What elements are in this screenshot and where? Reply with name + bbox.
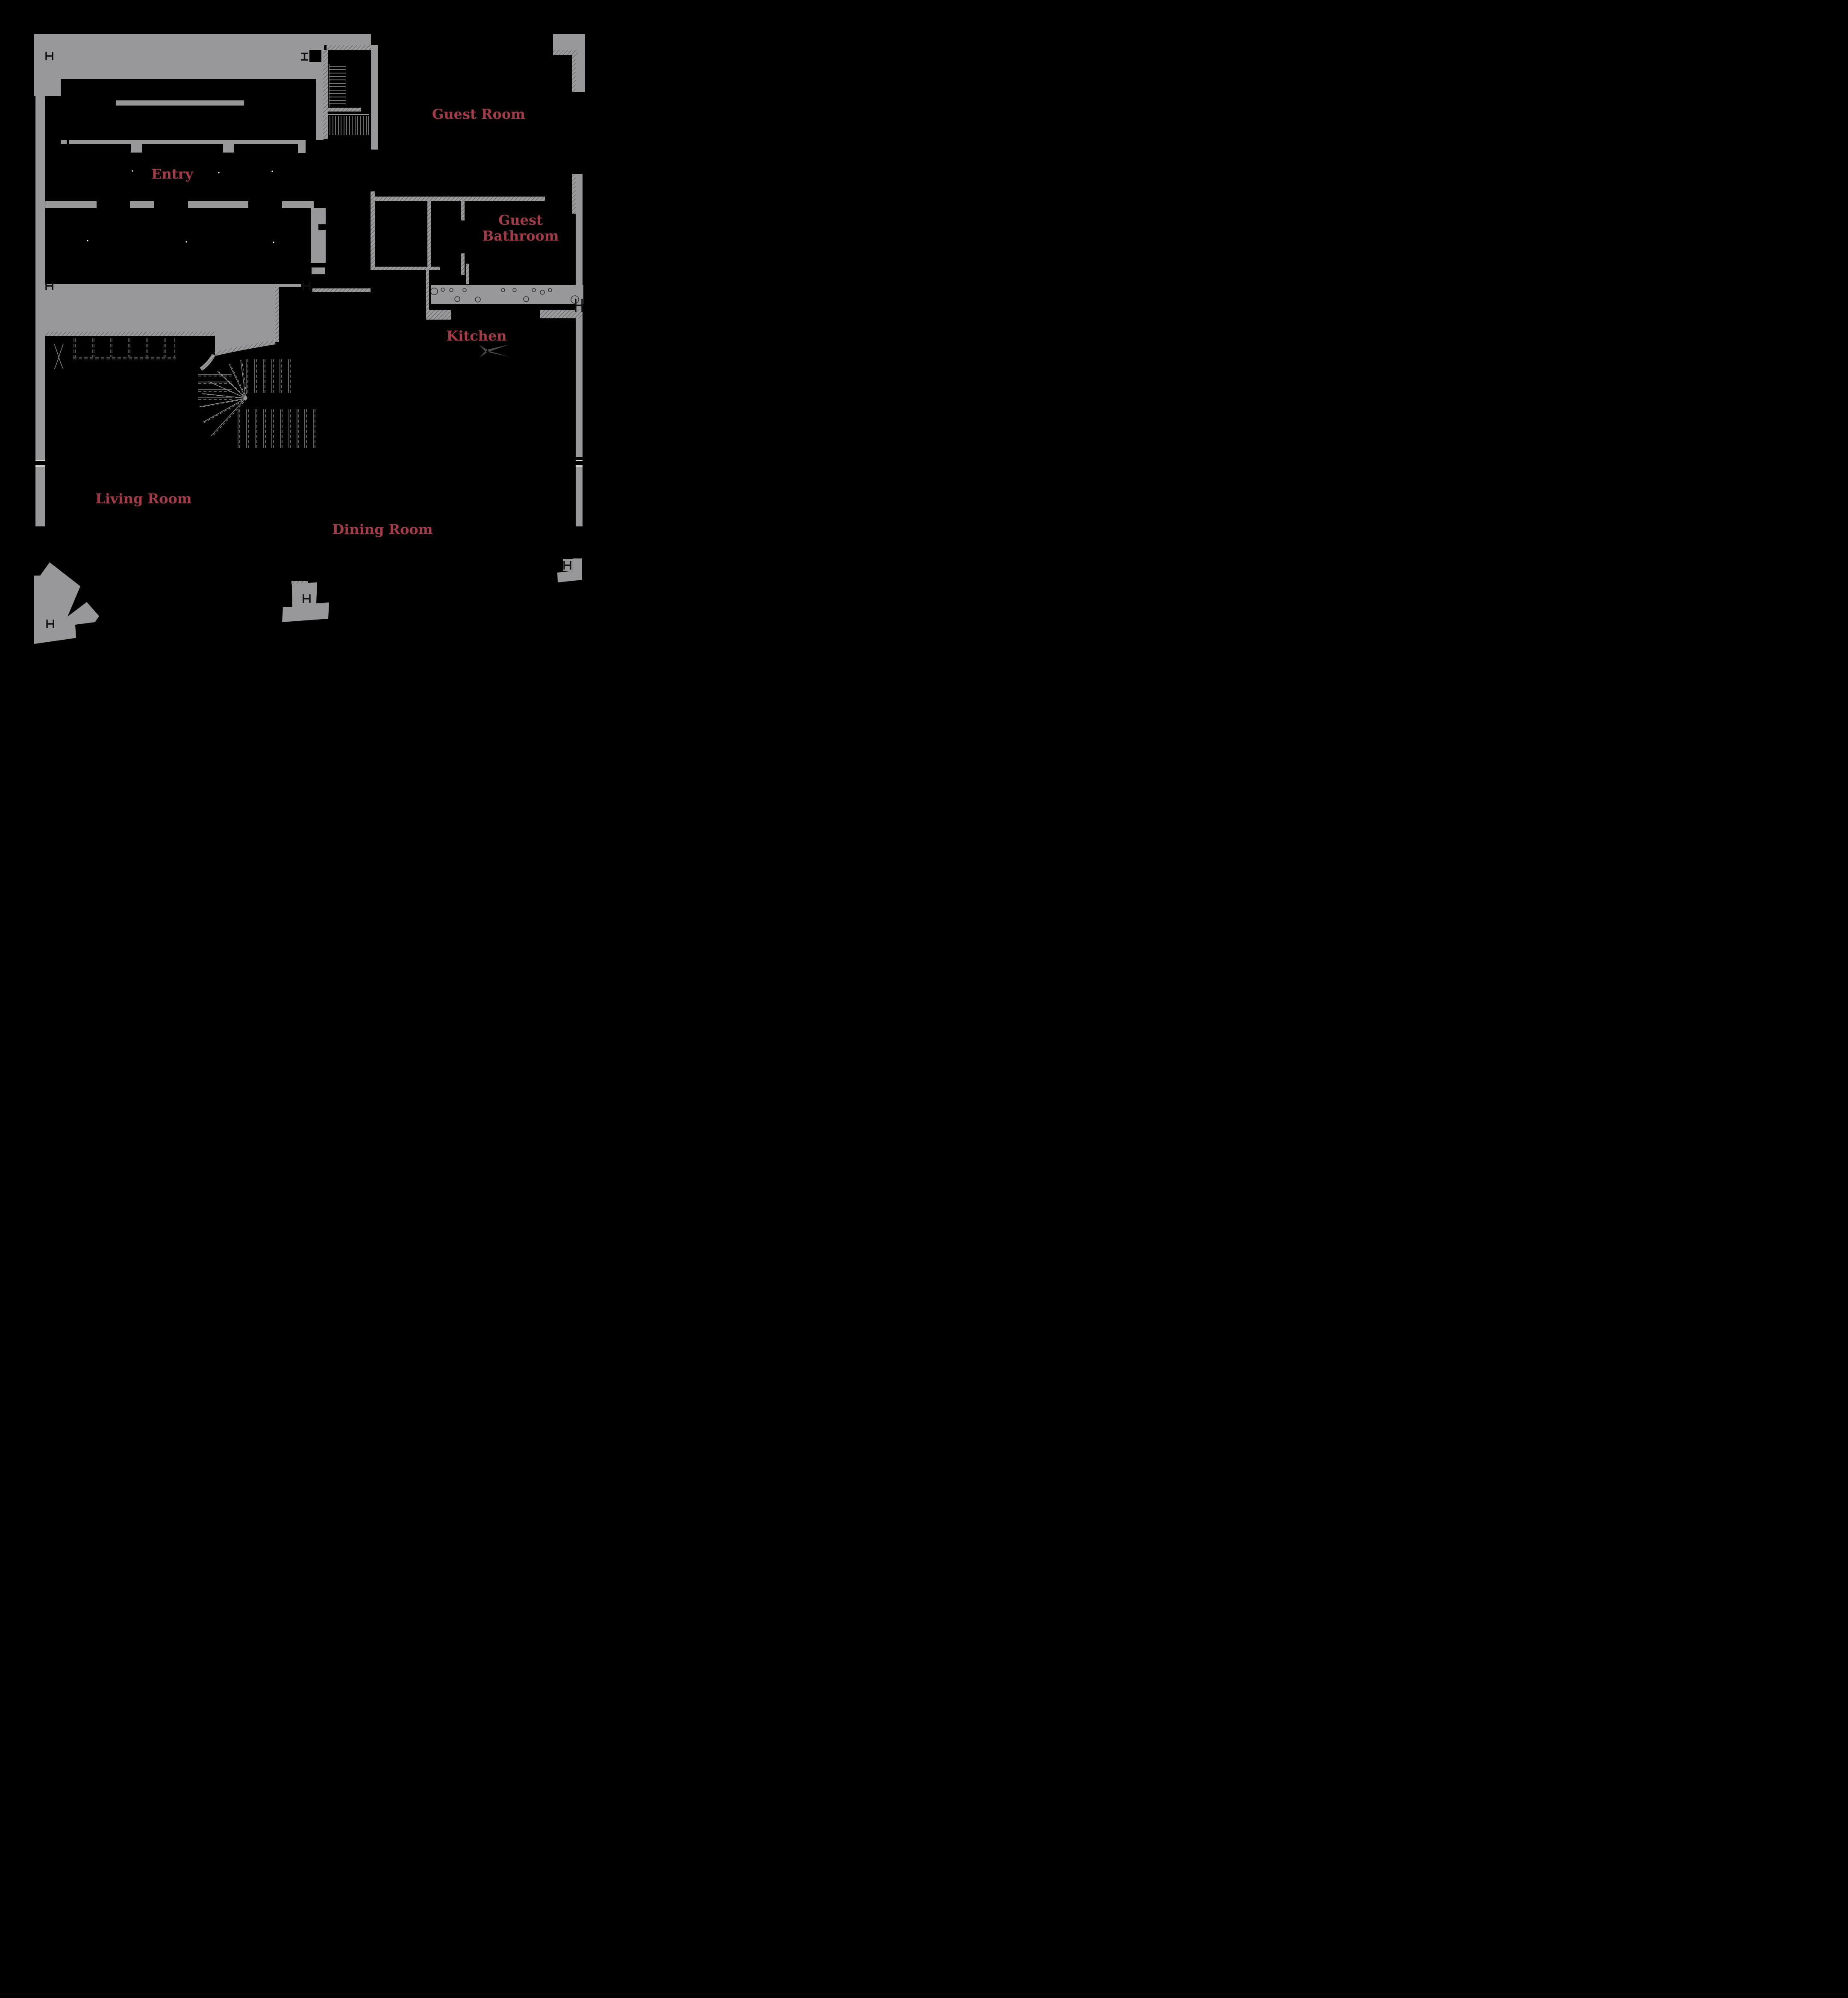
wall-right [576, 50, 585, 92]
entry-closet [61, 100, 306, 153]
pebble-strip [431, 285, 583, 304]
floor-plan-drawing: Entry Guest Room Guest Bathroom Kitchen … [0, 0, 616, 666]
wall-segment [312, 267, 325, 274]
hatched-wall [572, 55, 576, 92]
hatched-edge [45, 332, 215, 336]
hallway-landing [45, 284, 371, 369]
stair-flight-lower-solid [238, 409, 313, 448]
hatched-wall [553, 50, 578, 55]
stair-flight-upper-dashed [248, 359, 290, 393]
room-label-entry: Entry [151, 166, 194, 182]
wall-segment [188, 201, 248, 208]
room-label-guest-bathroom-line1: Guest [498, 212, 543, 228]
hatched-wall [461, 253, 465, 275]
stair-flight-lower-dashed [240, 409, 315, 448]
room-label-kitchen: Kitchen [446, 328, 506, 344]
window-tick [576, 460, 583, 461]
steel-column-h-marker-icon [303, 282, 310, 290]
window-tick [35, 465, 45, 467]
wall-stub [61, 140, 67, 144]
wall-left-lower [35, 467, 45, 526]
room-label-dining-room: Dining Room [332, 521, 433, 538]
landing-floor [45, 287, 275, 352]
wall [34, 79, 61, 96]
hatched-wall [466, 264, 469, 284]
light-fixture-star-icon [479, 344, 509, 358]
wall-top-right [553, 34, 585, 50]
hatched-wall [371, 267, 440, 270]
stair-flight-upper-solid [246, 359, 288, 393]
wall-left [35, 96, 45, 461]
wall-segment [130, 201, 154, 208]
wall-stairwell-right [371, 45, 378, 150]
hatched-wall [275, 287, 279, 342]
dashed-closet-doors [73, 338, 176, 359]
hatched-wall [426, 310, 451, 320]
hatched-wall [327, 45, 371, 50]
upper-stairwell [323, 45, 371, 139]
guest-bathroom-walls [371, 50, 583, 320]
wall-segment [311, 208, 326, 263]
hatched-wall [312, 288, 371, 292]
stair-winders-dashed [201, 360, 247, 436]
stair-treads-left-solid [198, 374, 232, 398]
wall-segment [282, 201, 314, 208]
wall [324, 34, 371, 45]
corner-pier [557, 558, 582, 582]
fireplace-pier [34, 562, 99, 644]
room-label-guest-room: Guest Room [432, 106, 525, 122]
window-tick [35, 460, 45, 461]
closet-bottom-wall [69, 140, 303, 144]
stair-treads-up [329, 64, 346, 107]
hatched-wall [371, 191, 375, 270]
closet-shelf [116, 100, 244, 106]
wall-segment [45, 201, 97, 208]
window-tick [576, 465, 583, 467]
hatched-wall [572, 174, 576, 214]
column-stub [131, 144, 142, 153]
middle-room-walls [45, 201, 326, 274]
hatched-wall [427, 201, 431, 270]
center-pier [282, 581, 329, 622]
wall-notch [318, 224, 326, 230]
hatched-wall [323, 108, 361, 112]
light-fixture-x-icon [54, 344, 63, 369]
wall-closet-right [316, 79, 324, 140]
hatched-curve-tail [201, 355, 214, 369]
wall-right-lower [576, 467, 583, 526]
room-label-living-room: Living Room [95, 491, 191, 507]
floor-plan-canvas: Entry Guest Room Guest Bathroom Kitchen … [0, 0, 616, 666]
column-stub [223, 144, 234, 153]
wall-stub [298, 140, 306, 153]
hatched-wall [371, 197, 545, 201]
wall [34, 34, 324, 79]
band-notch [309, 50, 321, 62]
stair-balusters [327, 116, 368, 135]
room-label-guest-bathroom-line2: Bathroom [482, 228, 559, 244]
hatched-wall [461, 201, 465, 220]
winder-stair [198, 359, 315, 448]
rail [45, 284, 301, 287]
